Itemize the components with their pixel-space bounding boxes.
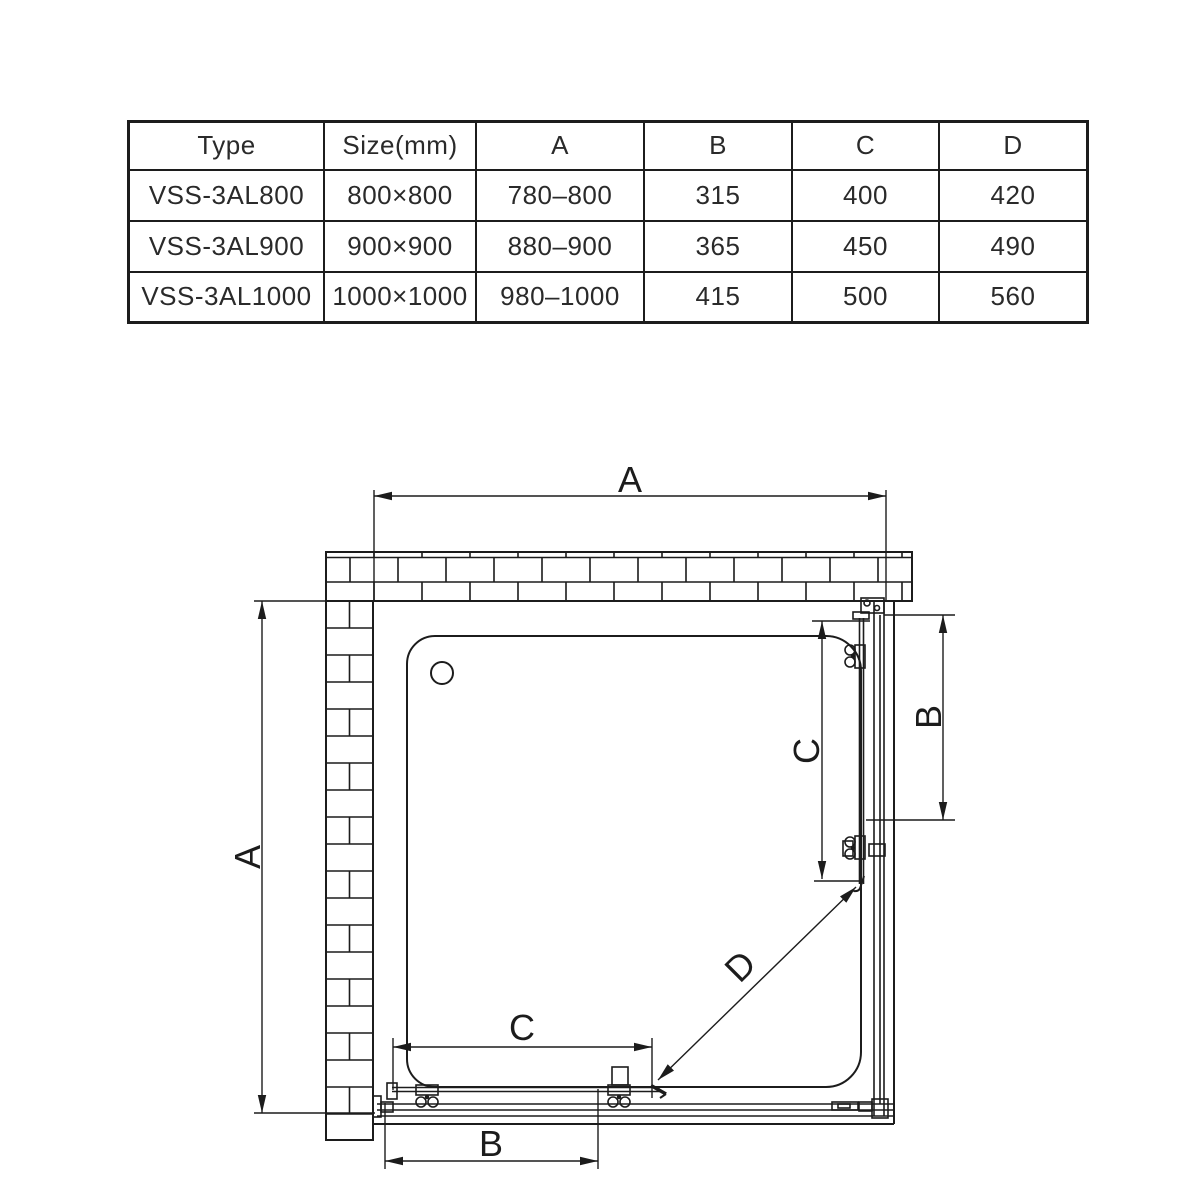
dim-diagonal-entry: D xyxy=(658,887,856,1080)
dim-left-depth: A xyxy=(227,601,375,1113)
dim-label-c-right: C xyxy=(786,738,827,764)
dim-label-a-left: A xyxy=(227,845,268,869)
technical-drawing: A A B C C B D xyxy=(0,0,1200,1200)
sliding-door-bottom xyxy=(387,1067,666,1107)
top-wall xyxy=(326,552,912,601)
drain xyxy=(431,662,453,684)
dim-top-width: A xyxy=(374,459,886,601)
dim-label-b-right: B xyxy=(908,705,949,729)
left-wall xyxy=(326,601,373,1140)
door-roller xyxy=(845,645,865,668)
shower-tray xyxy=(407,636,861,1087)
mounting-hardware xyxy=(373,598,888,1118)
dim-bottom-door: B xyxy=(385,1089,598,1169)
dim-label-c-bottom: C xyxy=(509,1007,535,1048)
dim-label-b-bottom: B xyxy=(479,1123,503,1164)
dim-label-a-top: A xyxy=(618,459,642,500)
dim-right-opening: C xyxy=(786,621,870,881)
dim-label-d: D xyxy=(716,942,763,989)
